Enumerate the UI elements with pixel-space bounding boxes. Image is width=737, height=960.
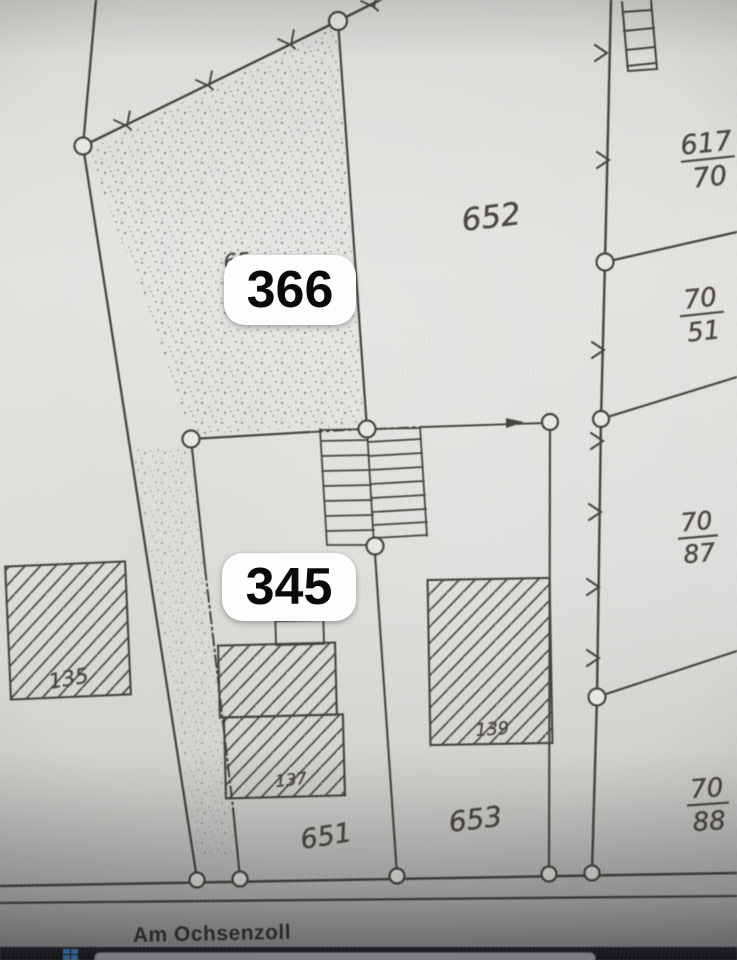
street-edge-line-1 <box>0 873 737 886</box>
parcel-fraction-70-51: 70 51 <box>677 282 727 349</box>
annotation-pill-366: 366 <box>224 255 356 325</box>
stairs-symbol <box>320 427 427 546</box>
right-diagonal-3 <box>597 651 737 697</box>
building-label-139: 139 <box>475 719 510 741</box>
cadastral-map: 652 651 653 65 135 137 139 617 70 70 51 … <box>0 0 737 960</box>
left-upper-boundary-line <box>83 0 96 146</box>
windows-logo-square <box>63 949 70 954</box>
fraction-denominator: 51 <box>686 315 722 348</box>
cadastral-map-photo: 652 651 653 65 135 137 139 617 70 70 51 … <box>0 0 737 960</box>
parcel-label-652: 652 <box>460 196 523 239</box>
neighbor-stairs-symbol <box>622 0 657 71</box>
right-diagonal-2 <box>601 377 737 419</box>
fraction-numerator: 70 <box>689 773 724 805</box>
taskbar <box>0 947 737 960</box>
parcel-651-653-divider-line <box>375 554 397 875</box>
building-137-porch <box>275 620 324 645</box>
parcel-fraction-70-88: 70 88 <box>685 773 731 839</box>
building-label-137: 137 <box>274 769 308 791</box>
fraction-numerator: 70 <box>682 282 718 315</box>
annotation-pill-label: 345 <box>246 557 333 617</box>
parcel-label-653: 653 <box>447 800 504 839</box>
fence-line-arrow-segment <box>423 423 544 427</box>
taskbar-search-field[interactable] <box>94 952 596 960</box>
parcel-fraction-70-87: 70 87 <box>675 505 720 569</box>
windows-logo-square <box>71 949 78 954</box>
fraction-numerator: 70 <box>679 506 713 538</box>
right-diagonal-1 <box>605 232 737 262</box>
windows-logo-square <box>63 955 70 960</box>
fraction-denominator: 87 <box>682 538 716 570</box>
annotation-pill-label: 366 <box>247 260 334 320</box>
windows-logo-square <box>71 955 78 960</box>
parcel-label-651: 651 <box>298 817 354 856</box>
street-edge-line-2 <box>0 896 737 903</box>
parcel-fraction-617-70: 617 70 <box>678 125 737 195</box>
windows-start-icon[interactable] <box>63 949 78 960</box>
street-name-label: Am Ochsenzoll <box>133 921 292 947</box>
fraction-denominator: 88 <box>692 806 727 838</box>
annotation-pill-345: 345 <box>222 553 356 621</box>
fraction-denominator: 70 <box>691 160 728 194</box>
